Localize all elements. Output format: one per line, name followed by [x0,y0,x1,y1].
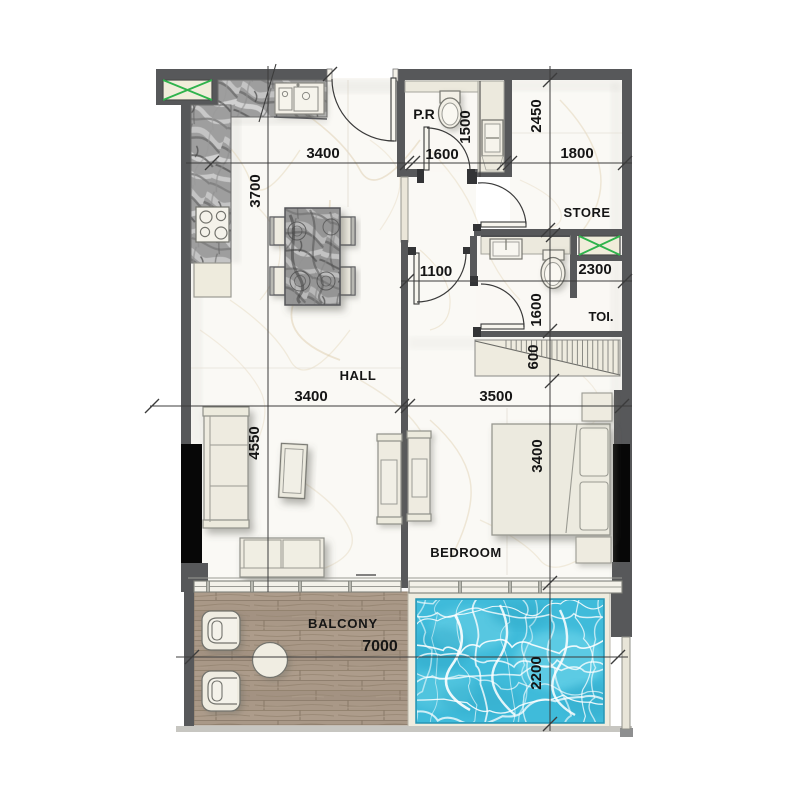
svg-text:3400: 3400 [294,388,327,405]
svg-text:BALCONY: BALCONY [308,616,378,631]
svg-text:2450: 2450 [528,99,545,132]
svg-text:3400: 3400 [529,439,546,472]
svg-text:1600: 1600 [425,146,458,163]
svg-text:3500: 3500 [479,388,512,405]
svg-text:TOI.: TOI. [588,309,613,324]
svg-text:4550: 4550 [246,426,263,459]
svg-text:600: 600 [525,344,542,369]
svg-text:P.R: P.R [413,106,435,122]
svg-text:HALL: HALL [340,368,377,383]
svg-text:3400: 3400 [306,145,339,162]
svg-text:BEDROOM: BEDROOM [430,545,501,560]
svg-text:2300: 2300 [578,261,611,278]
svg-text:1800: 1800 [560,145,593,162]
svg-text:STORE: STORE [563,205,610,220]
svg-text:2200: 2200 [528,656,545,689]
svg-text:1500: 1500 [457,110,474,143]
svg-text:1600: 1600 [528,293,545,326]
svg-text:1100: 1100 [420,263,453,280]
svg-text:7000: 7000 [362,638,398,655]
svg-text:3700: 3700 [247,174,264,207]
